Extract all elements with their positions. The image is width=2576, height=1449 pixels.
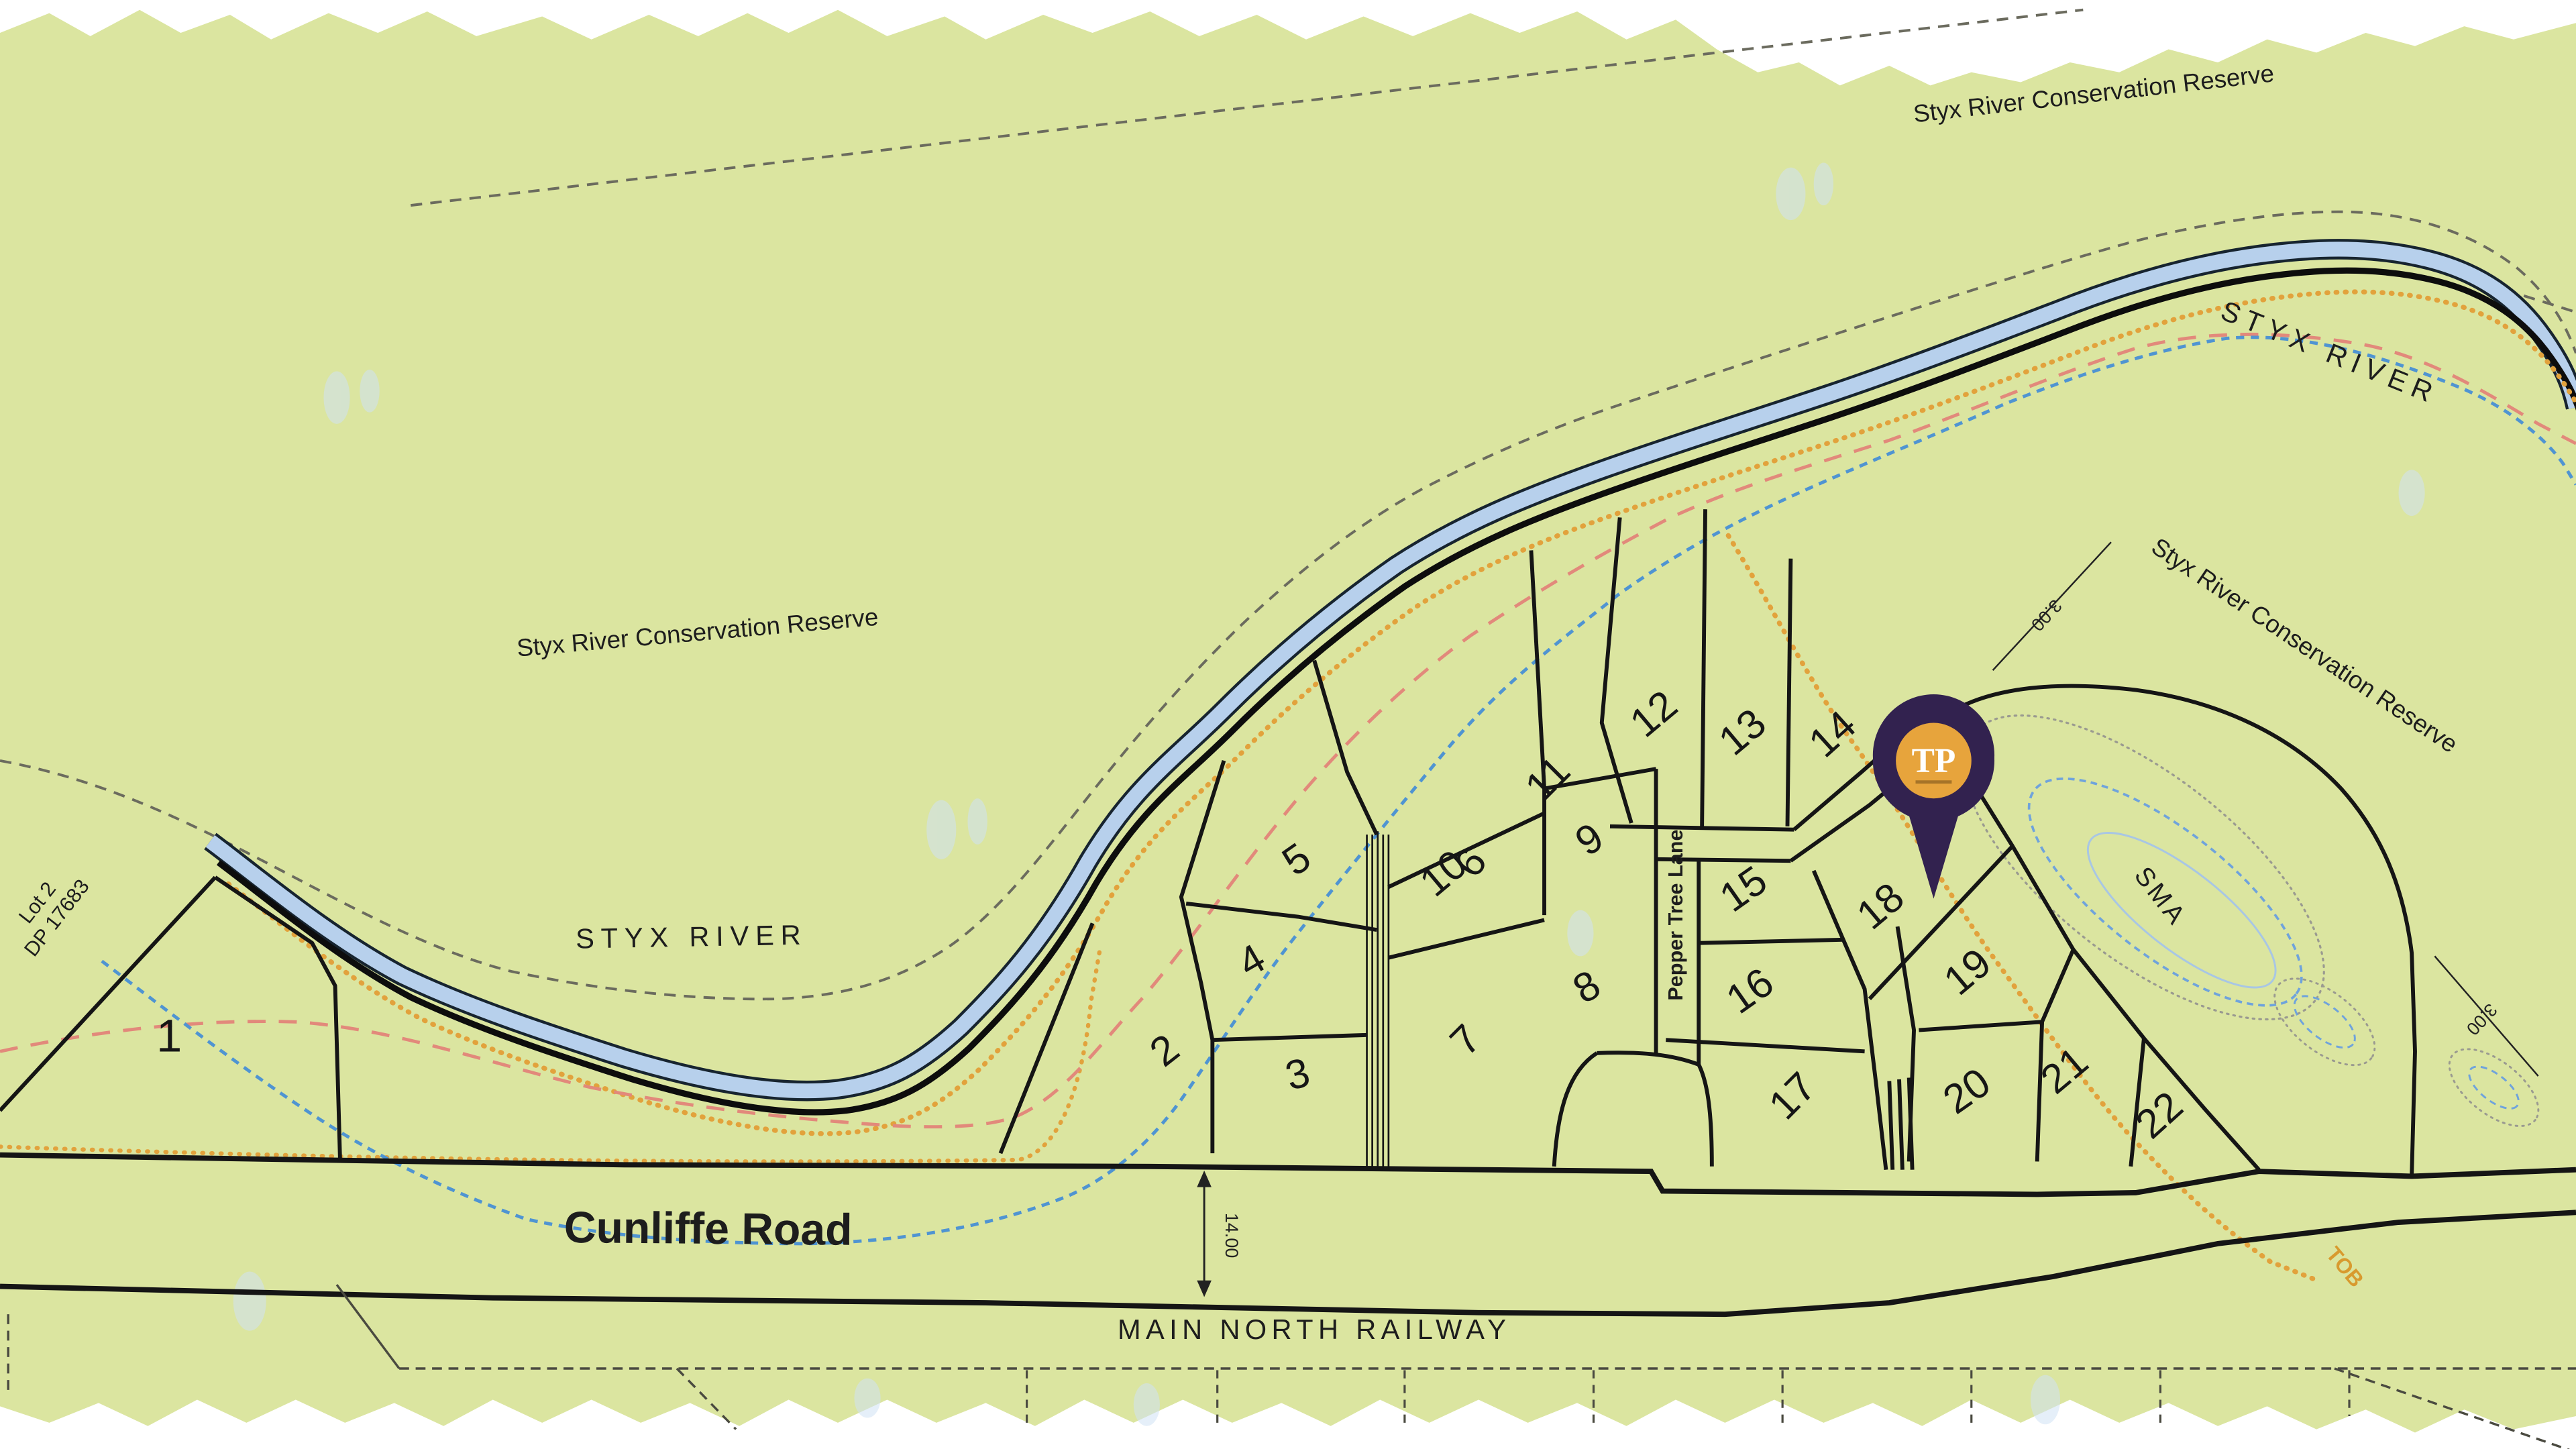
label-styx-river-left: STYX RIVER	[576, 919, 808, 955]
pin-logo-subtext-bar	[1916, 780, 1952, 784]
label-dim-road-width: 14.00	[1222, 1213, 1242, 1258]
label-cunliffe-road: Cunliffe Road	[564, 1203, 853, 1255]
lot-1-label: 1	[156, 1010, 182, 1061]
pin-logo-text: TP	[1912, 742, 1956, 780]
map-paper-background	[0, 10, 2576, 1433]
subdivision-map-canvas: Styx River Conservation Reserve Styx Riv…	[0, 0, 2576, 1449]
label-main-north-railway: MAIN NORTH RAILWAY	[1118, 1313, 1511, 1345]
label-pepper-tree-lane: Pepper Tree Lane	[1664, 829, 1687, 1000]
